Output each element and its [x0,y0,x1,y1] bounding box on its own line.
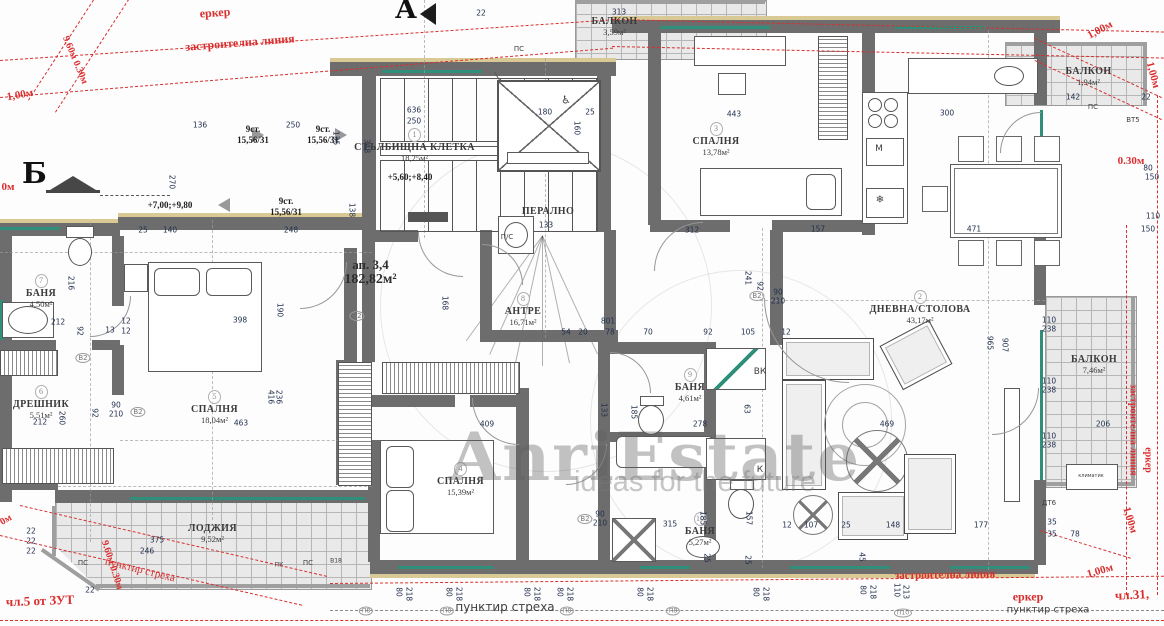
dimension-text: 110 [893,583,902,597]
toilet [68,238,92,266]
fridge [866,188,904,218]
side-table [793,495,833,535]
annotation-text: ПС [514,45,524,53]
cooktop-burner [884,114,898,128]
dining-table [950,164,1062,238]
axis-line [762,228,763,568]
room-name: БАЛКОН [1051,354,1137,366]
chair [1034,240,1060,266]
wall [648,33,661,225]
dimension-text: 90 [111,401,121,410]
window [0,227,60,230]
room-area: 1,94м² [1046,78,1131,88]
room-label-bedroom3: 3 СПАЛНЯ 13,78м² [666,118,766,158]
room-label-bath10: 10 БАНЯ 5,27м² [658,508,742,548]
regulation-note: 1,00м [1085,562,1114,581]
chair [996,240,1022,266]
dimension-text: 218 [455,587,464,601]
red-line-bottom-edge [0,620,1164,621]
dimension-text: 80 [752,587,761,597]
stair-ratio: 15,56/31 [292,135,354,146]
window [640,566,690,569]
toilet-tank [66,226,94,238]
dimension-text: 80 [523,587,532,597]
dimension-text: 22 [26,527,36,536]
dimension-text: 218 [762,587,771,601]
elevator-door [507,152,589,164]
room-area: 9,52м² [165,535,260,545]
room-label-laundry: ПЕРАЛНО [505,206,591,218]
pillow [806,174,836,210]
dresser [694,36,786,66]
dimension-text: 35 [1047,518,1057,527]
dimension-text: 213 [902,585,911,599]
wall [330,62,616,76]
room-area: 18,25м² [352,154,477,164]
annotation-text: В2 [577,514,592,524]
room-name: ПЕРАЛНО [505,206,591,218]
door-arc [992,388,1039,435]
stair-ratio: 15,56/31 [222,135,284,146]
parapet [1131,296,1135,486]
stair-flight-label: 9ст. 15,56/31 [292,124,354,146]
room-number: 9 [684,368,697,382]
dimension-text: 92 [91,408,100,418]
annotation-text: П8 [440,607,454,616]
axis-line [90,222,91,542]
parapet [1005,42,1147,46]
regulation-note: 1,00м [1120,505,1139,534]
dimension-text: 218 [869,585,878,599]
room-label-closet: 6 ДРЕШНИК 5,51м² [0,381,82,421]
room-number: 8 [517,292,530,306]
level-note: +7,00;+9,80 [130,200,210,211]
microwave [866,138,904,166]
wardrobe [2,448,114,484]
watermark-tagline: ideas for the future [415,466,975,499]
wall [92,340,120,350]
room-area: 16,71м² [473,318,573,328]
annotation-text: В2 [75,353,90,363]
regulation-note: еркер [1143,447,1154,473]
dimension-text: 92 [76,326,85,336]
room-label-living: 2 ДНЕВНА/СТОЛОВА 43,17м² [845,286,995,326]
room-label-bedroom5: 5 СПАЛНЯ 18,04м² [162,386,267,426]
room-label-balcony-topright: БАЛКОН 1,94м² [1046,66,1131,87]
room-number: 1 [408,128,421,142]
door-arc [90,296,131,337]
window-balcony-door [1040,330,1043,480]
dimension-text: 218 [533,587,542,601]
room-area: 4,61м² [645,394,735,404]
room-number: 3 [710,122,723,136]
level-note: +5,60;+8,40 [370,172,450,183]
dimension-text: 12 [121,327,131,336]
pillow [206,268,252,296]
room-area: 4,50м² [0,300,82,310]
chair [922,186,948,212]
annotation-text: П8 [560,607,574,616]
door-arc [1000,112,1041,153]
window [950,566,1030,569]
room-name: БАЛКОН [572,16,657,28]
sink [994,66,1024,86]
axis-line [120,440,370,441]
apartment-label: ап. 3,4 182,82м² [318,258,423,288]
wall [0,223,120,236]
parapet [96,584,370,588]
wall [112,345,124,395]
annotation-text: В2 [130,407,145,417]
washing-machine-drum [504,222,528,248]
dimension-text: 210 [109,410,123,419]
roof-icon [50,176,96,190]
eave-dashed-line [330,610,1164,611]
stair-direction-arrow [218,198,230,212]
regulation-note: чл.31, [1115,586,1150,604]
roof-dashed-line [100,195,170,196]
dimension-text: 150 [1141,225,1155,234]
room-area: 3,59м² [572,28,657,38]
balcony-tiles-right [1045,296,1137,488]
regulation-note: 0м [0,512,14,527]
room-label-balcony-top: БАЛКОН 3,59м² [572,16,657,37]
wardrobe [0,350,58,376]
room-label-entry: 8 АНТРЕ 16,71м² [473,288,573,328]
stair-steps: 9ст. [255,196,317,207]
dimension-text: 218 [646,587,655,601]
annotation-text: П8 [666,607,680,616]
room-label-balcony-right: БАЛКОН 7,46м² [1051,354,1137,375]
wall [1034,480,1046,565]
regulation-note: еркер [199,4,231,21]
room-label-bath7: 7 БАНЯ 4,50м² [0,270,82,310]
room-name: БАЛКОН [1046,66,1131,78]
wardrobe [338,362,372,486]
wall [516,498,529,562]
armchair [880,320,953,390]
dimension-text: 236 [275,390,284,404]
dimension-text: 80 [1143,164,1153,173]
wardrobe [382,362,520,394]
dimension-text: 80 [636,587,645,597]
stair-steps: 9ст. [222,124,284,135]
stair-ratio: 15,56/31 [255,207,317,218]
annotation-text: пунктир стреха [455,600,554,614]
dimension-text: 965 [986,336,995,350]
axis-line [58,486,372,487]
room-label-bath9: 9 БАНЯ 4,61м² [645,364,735,404]
dimension-text: 177 [974,521,988,530]
room-area: 5,27м² [658,538,742,548]
dimension-text: 270 [168,175,177,189]
dimension-text: 22 [26,547,36,556]
dimension-text: 110 [1146,212,1160,221]
dimension-text: 80 [395,587,404,597]
dimension-text: 78 [1070,530,1080,539]
parapet [1143,42,1147,106]
dimension-text: 190 [276,303,285,317]
floor-plan-canvas: А Б ап. 3,4 182,82м² +7,00;+9,80 +5,60;+… [0,0,1164,626]
section-marker-b: Б [22,156,47,190]
room-area: 13,78м² [666,148,766,158]
dimension-text: 300 [940,109,954,118]
section-marker-a: А [395,0,417,25]
apartment-area: 182,82м² [318,272,423,287]
wall [0,340,56,350]
regulation-note: 0м [2,181,15,193]
room-number: 10 [694,512,707,526]
cooktop-burner [868,98,882,112]
red-wedge [1040,530,1131,559]
apartment-number: ап. 3,4 [318,258,423,272]
room-name: ЛОДЖИЯ [165,523,260,535]
dimension-text: 80 [556,587,565,597]
nightstand [124,264,148,292]
room-area: 5,51м² [0,411,82,421]
stair-steps: 9ст. [292,124,354,135]
regulation-note: еркер [1013,590,1044,605]
pillow [154,268,200,296]
annotation-text: ВТ5 [1126,116,1140,124]
dimension-text: 907 [1001,338,1010,352]
room-number: 6 [35,385,48,399]
room-number: 5 [208,390,221,404]
cooktop-burner [884,98,898,112]
chair [958,240,984,266]
room-label-loggia: ЛОДЖИЯ 9,52м² [165,523,260,544]
dimension-text: 416 [267,390,276,404]
regulation-note: чл.5 от ЗУТ [6,592,75,610]
window [398,566,493,569]
dimension-text: 80 [445,587,454,597]
armchair [838,492,908,540]
wall [772,220,862,232]
wall [480,330,618,342]
room-area: 43,17м² [845,316,995,326]
room-label-stairwell: 1 СТЪЛБИЩНА КЛЕТКА 18,25м² [352,124,477,164]
cooktop-burner [868,114,882,128]
sink [8,306,48,334]
entry-arrow [408,204,448,222]
room-area: 7,46м² [1051,366,1137,376]
dimension-text: 218 [566,587,575,601]
wall [118,217,376,230]
axis-line [0,252,372,253]
chair [958,136,984,162]
stair-flight-label: 9ст. 15,56/31 [222,124,284,146]
roof-icon-eave [46,190,100,193]
wall [370,395,455,407]
dimension-text: 22 [476,9,486,18]
window [660,26,770,29]
ac-unit [1066,464,1118,490]
dimension-text: 136 [193,121,207,130]
room-area: 18,04м² [162,416,267,426]
dimension-text: 80 [859,585,868,595]
stair-flight-label: 9ст. 15,56/31 [255,196,317,218]
dimension-text: 218 [405,587,414,601]
room-number: 7 [35,274,48,288]
room-number: 2 [914,290,927,304]
parapet [575,0,765,4]
regulation-note: 0.30м [1118,155,1145,167]
wall [604,230,616,342]
red-line-building-vertical [1126,225,1127,595]
window [790,566,890,569]
window [382,70,482,73]
annotation-text: П8 [359,607,373,616]
red-line-erker-vertical [1157,95,1158,595]
stool [718,73,746,95]
window [130,497,365,500]
section-marker-a-icon [420,3,436,25]
shower [612,518,656,562]
